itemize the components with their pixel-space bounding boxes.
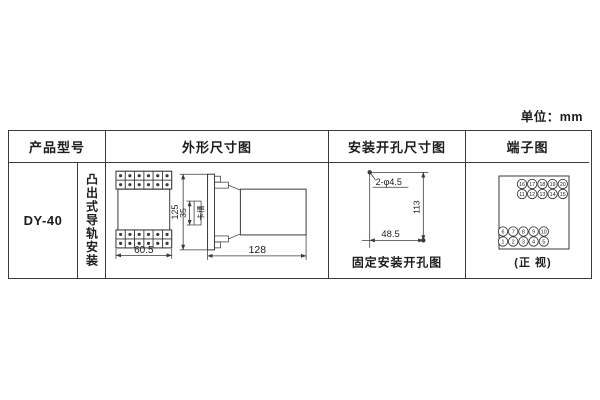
svg-text:2: 2 xyxy=(512,239,515,245)
dimension-rail-width: 35 xyxy=(178,201,193,225)
svg-text:3: 3 xyxy=(522,239,525,245)
header-outline-label: 外形尺寸图 xyxy=(182,137,252,156)
product-model-cell: DY-40 xyxy=(9,163,78,278)
front-view: 60.5 xyxy=(116,171,172,259)
vertical-spacing-value: 113 xyxy=(411,200,421,214)
terminal-circle: 18 xyxy=(538,179,547,188)
header-mounting: 安装开孔尺寸图 xyxy=(329,131,466,163)
front-body xyxy=(118,189,170,230)
header-terminal: 端子图 xyxy=(466,131,589,163)
svg-text:17: 17 xyxy=(529,182,535,188)
front-width-value: 60.5 xyxy=(134,245,154,256)
terminal-circle: 11 xyxy=(517,189,526,198)
side-step-top-1 xyxy=(215,176,221,182)
svg-text:8: 8 xyxy=(522,229,525,235)
dimension-vertical-spacing: 113 xyxy=(411,172,423,240)
terminal-circle: 14 xyxy=(548,189,557,198)
header-mounting-label: 安装开孔尺寸图 xyxy=(348,137,446,156)
terminal-circle: 13 xyxy=(538,189,547,198)
svg-text:15: 15 xyxy=(560,192,566,198)
side-flange xyxy=(208,174,215,250)
terminal-circle: 19 xyxy=(548,179,557,188)
terminal-circle: 20 xyxy=(558,179,567,188)
datasheet-page: 单位：mm 产品型号 外形尺寸图 安装开孔尺寸图 端子图 DY-40 凸出式导轨… xyxy=(0,0,600,400)
dimension-horizontal-spacing: 48.5 xyxy=(362,228,424,240)
svg-text:1: 1 xyxy=(502,239,505,245)
terminal-circle: 2 xyxy=(509,237,518,246)
svg-text:6: 6 xyxy=(502,229,505,235)
svg-text:19: 19 xyxy=(550,182,556,188)
hole-spec-callout: 2-φ4.5 xyxy=(371,173,409,187)
hole-spec-value: 2-φ4.5 xyxy=(376,177,402,187)
mounting-hole-drawing: 2-φ4.5 113 48.5 固定安装开孔图 xyxy=(329,163,465,278)
side-step-top-2 xyxy=(215,182,229,188)
svg-text:4: 4 xyxy=(532,239,535,245)
svg-text:14: 14 xyxy=(550,192,556,198)
dimension-front-width: 60.5 xyxy=(116,245,172,259)
side-view: 卡槽 125 35 xyxy=(170,174,306,260)
header-product-model: 产品型号 xyxy=(9,131,106,163)
terminal-circle: 7 xyxy=(509,227,518,236)
terminal-circle: 1 xyxy=(498,237,507,246)
terminal-circle: 12 xyxy=(528,189,537,198)
rail-width-value: 35 xyxy=(178,208,188,218)
header-product-model-label: 产品型号 xyxy=(29,137,85,156)
side-step-bottom-2 xyxy=(215,236,229,242)
mounting-type-cell: 凸出式导轨安装 xyxy=(78,163,106,278)
outline-drawing-cell: 60.5 卡槽 xyxy=(106,163,329,278)
side-body xyxy=(240,189,306,235)
svg-text:11: 11 xyxy=(519,192,525,198)
terminal-circle: 15 xyxy=(558,189,567,198)
svg-text:13: 13 xyxy=(539,192,545,198)
header-outline: 外形尺寸图 xyxy=(106,131,329,163)
unit-label: 单位：mm xyxy=(521,106,583,125)
terminal-diagram-cell: 1617181920111213141567891012345 (正 视) xyxy=(466,163,589,278)
outline-drawing: 60.5 卡槽 xyxy=(106,163,328,278)
terminal-circle: 9 xyxy=(529,227,538,236)
svg-text:9: 9 xyxy=(532,229,535,235)
svg-text:12: 12 xyxy=(529,192,535,198)
side-step-bottom-1 xyxy=(215,242,221,248)
mounting-caption: 固定安装开孔图 xyxy=(352,256,442,270)
terminal-circle: 4 xyxy=(529,237,538,246)
svg-text:7: 7 xyxy=(512,229,515,235)
terminal-circle: 5 xyxy=(539,237,548,246)
svg-text:16: 16 xyxy=(519,182,525,188)
svg-text:5: 5 xyxy=(542,239,545,245)
terminal-diagram: 1617181920111213141567891012345 (正 视) xyxy=(466,163,589,278)
horizontal-spacing-value: 48.5 xyxy=(381,228,399,239)
depth-value: 128 xyxy=(249,245,267,256)
terminal-circle: 6 xyxy=(498,227,507,236)
mounting-type-label: 凸出式导轨安装 xyxy=(86,173,98,268)
terminal-circle: 10 xyxy=(539,227,548,236)
svg-text:18: 18 xyxy=(539,182,545,188)
dimension-depth: 128 xyxy=(208,235,307,260)
product-model: DY-40 xyxy=(24,213,63,228)
terminal-caption: (正 视) xyxy=(514,255,551,269)
terminal-screw-grid xyxy=(116,171,172,248)
terminal-circle: 3 xyxy=(519,237,528,246)
rail-slot-label: 卡槽 xyxy=(196,205,206,220)
terminal-circle: 17 xyxy=(528,179,537,188)
terminal-circle: 8 xyxy=(519,227,528,236)
svg-text:20: 20 xyxy=(560,182,566,188)
svg-text:10: 10 xyxy=(541,229,547,235)
mounting-drawing-cell: 2-φ4.5 113 48.5 固定安装开孔图 xyxy=(329,163,466,278)
spec-table: 产品型号 外形尺寸图 安装开孔尺寸图 端子图 DY-40 凸出式导轨安装 xyxy=(8,130,592,279)
terminal-circle: 16 xyxy=(517,179,526,188)
terminal-circles: 1617181920111213141567891012345 xyxy=(498,179,567,246)
header-terminal-label: 端子图 xyxy=(506,137,548,156)
